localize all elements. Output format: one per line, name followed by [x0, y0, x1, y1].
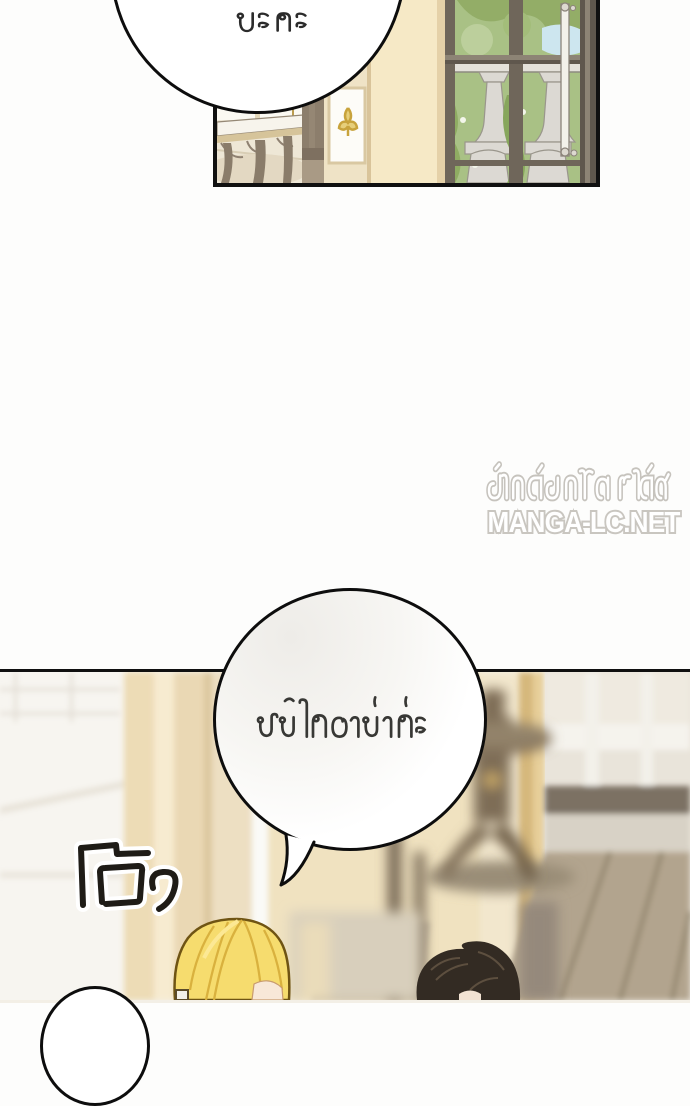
svg-text:MANGA-LC.NET: MANGA-LC.NET	[488, 507, 681, 539]
